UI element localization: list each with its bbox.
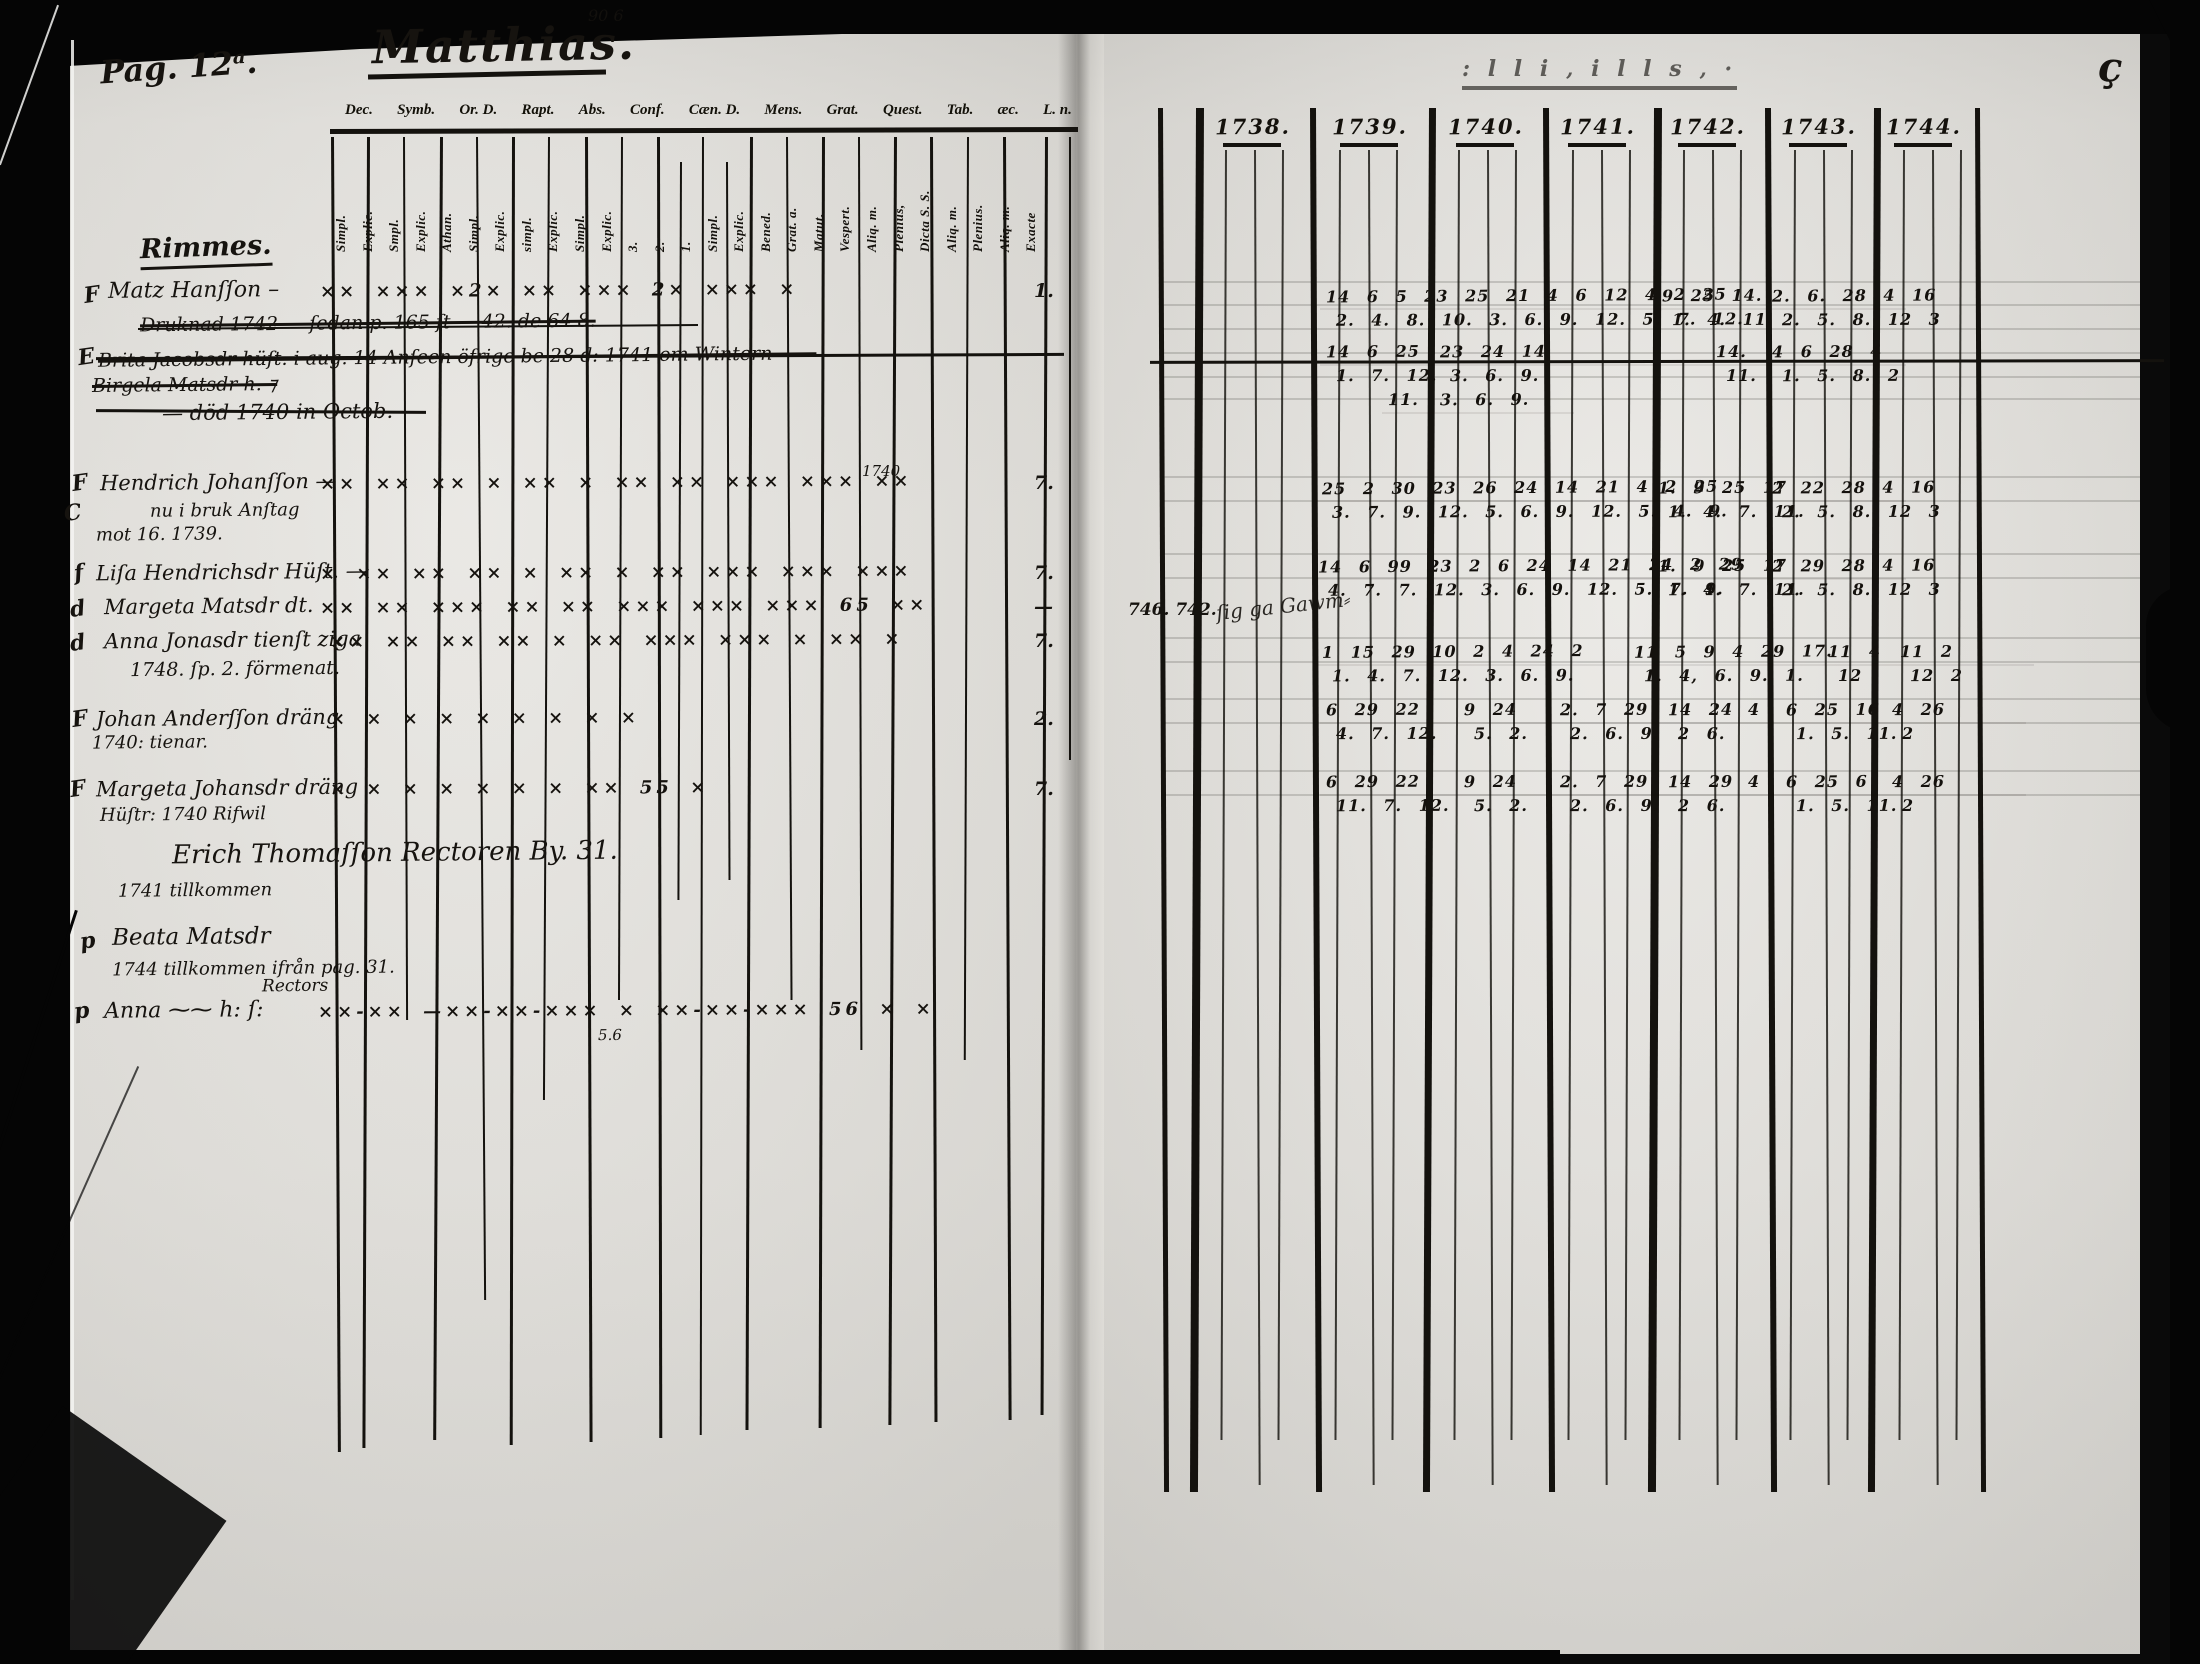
bleedthrough-note: : l l i ‚ i l l s ‚ · [1462, 56, 1737, 90]
grid-cell-bottom: 2. 6. 9. [1570, 796, 1659, 815]
header-abbrev: æc. [998, 102, 1019, 119]
grid-row-divider [1316, 500, 1906, 502]
grid-cell-top: 14 6 25 [1326, 342, 1420, 362]
entry-name: 1741 tillkommen [118, 879, 272, 902]
entry-grade: 7. [1034, 472, 1054, 494]
grid-cell-top: 1. 9 25 17 [1658, 478, 1787, 498]
header-abbrev: Dec. [345, 102, 373, 119]
grid-cell-bottom: 2. 5. 8. 12 3 [1782, 580, 1941, 600]
year-underline [1678, 143, 1736, 147]
entry-marks: × ×× ×× ×× × ×× × ×× ××× ××× ××× [320, 560, 913, 584]
header-abbrev: Abs. [579, 102, 606, 119]
grid-cell-top: 1. 9 25 17 [1658, 556, 1787, 576]
year-underline [1340, 143, 1398, 147]
margin-mark: F [70, 469, 89, 497]
grid-cell-bottom: 1. 4. 11. [1672, 310, 1773, 329]
grid-cell-bottom: 12 2 [1910, 666, 1963, 685]
entry-name: Hendrich Johanſſon — [100, 469, 337, 495]
column-label: Simpl. [706, 140, 719, 252]
entry-name: mot 16. 1739. [96, 523, 223, 545]
grid-cell-top: 14 24 [1668, 700, 1733, 719]
entry-grade: 7. [1034, 778, 1054, 800]
grid-row-divider [1312, 578, 1906, 580]
scan-border-bottom [0, 1650, 1560, 1664]
entry-name: 1740: tienar. [92, 731, 208, 753]
grid-cell-top: 9 24 [1464, 772, 1517, 791]
grid-cell-bottom: 2 6. [1678, 796, 1725, 815]
entry-grade: 7. [1034, 630, 1054, 652]
year-label: 1741. [1552, 114, 1644, 140]
grid-cell-bottom: 4. 7. 7. 12. 3. 6. 9. 12. 5. 7. 9. [1328, 579, 1724, 599]
column-rule [1069, 137, 1071, 760]
grid-cell-top: 4 [1748, 772, 1760, 791]
grid-cell-top: 11 2 [1900, 642, 1953, 661]
grid-cell-top: 9 24 [1464, 700, 1517, 719]
row-guide-line [1162, 352, 2140, 354]
margin-mark: F [70, 705, 89, 733]
grid-cell-top: 2. 7 29 [1560, 772, 1648, 792]
grid-cell-bottom: 2. 6. 9. [1570, 724, 1659, 743]
column-label: Explic. [732, 140, 745, 252]
margin-mark: C [62, 499, 83, 527]
header-abbrev: Tab. [947, 102, 974, 119]
margin-mark: F [82, 281, 101, 309]
entry-name: Birgela Matsdr h. ⁊ [92, 373, 277, 397]
entry-name: 1744 tillkommen ifrån pag. 31. [112, 957, 395, 981]
entry-marks: ×× ×× ××× ×× ×× ××× ××× ××× 65 ×× [320, 594, 928, 618]
grid-cell-top: 11 4 [1828, 642, 1881, 661]
year-underline [1789, 143, 1847, 147]
entry-name: Hüſtr: 1740 Rifwil [100, 803, 266, 826]
year-label: 1740. [1440, 114, 1532, 140]
row-guide-line [1162, 637, 2140, 639]
header-abbrev: Mens. [764, 102, 802, 119]
entry-name: Anna Jonasdr tienſt ziga [104, 627, 361, 654]
column-label: Aliq. m. [945, 140, 958, 252]
entry-note: 1740 [862, 462, 900, 480]
header-abbrev: L. n. [1043, 102, 1072, 119]
year-label: 1743. [1773, 114, 1865, 140]
header-abbrev: Cæn. D. [689, 102, 740, 119]
grid-cell-bottom: 2. 5. 8. 12 3 [1782, 502, 1941, 522]
row-guide-line [1162, 398, 2140, 400]
grid-cell-top: 11. [1388, 390, 1419, 409]
grid-row-divider [1316, 664, 2034, 666]
grid-cell-top: 2. 7 29 [1560, 700, 1648, 720]
book-scan: Pag. 12ᵃ. 90 6 Matthias. Dec.Symb.Or. D.… [0, 0, 2200, 1664]
grid-cell-top: 4 [1748, 700, 1760, 719]
year-underline [1456, 143, 1514, 147]
entry-grade: — [1034, 596, 1053, 618]
grid-cell-top: 6 29 22 [1326, 772, 1420, 792]
grid-cell-top: 4 26 [1892, 700, 1945, 719]
header-abbrev: Conf. [630, 102, 665, 119]
grid-cell-bottom: 3. 6. 9. [1450, 366, 1539, 385]
grid-cell-top: 11 5 9 4 29 17. [1634, 641, 1833, 661]
row-guide-line [1162, 698, 2140, 700]
grid-cell-bottom: 1. 5. 8. 2 [1782, 366, 1900, 385]
grid-cell-top: 9 25 14. [1662, 286, 1763, 306]
column-label: Explic. [414, 140, 427, 252]
entry-marks: × × × × × × × × × [330, 707, 640, 730]
grid-row-divider [1320, 364, 1906, 366]
entry-name: nu i bruk Anſtag [150, 499, 300, 522]
entry-marks: ×× ×× ×× ×× × ×× ××× ××× × ×× × [330, 628, 903, 652]
column-label: Aliq. m. [865, 140, 878, 252]
column-label: Simpl. [573, 140, 586, 252]
entry-name: 1748. ſp. 2. förmenat. [130, 657, 340, 681]
grid-cell-bottom: 11. [1726, 366, 1757, 385]
year-label: 1739. [1324, 114, 1416, 140]
section-heading: Rimmes. [139, 230, 272, 271]
column-label: Plenius. [971, 140, 984, 252]
column-label: Bened. [759, 140, 772, 252]
entry-name: Johan Anderſſon dräng [96, 705, 340, 732]
grid-cell-top: 6 25 6 [1786, 772, 1868, 792]
entry-marks: × × × × × × × ×× 55 × [330, 777, 709, 800]
grid-cell-top: 4 26 [1892, 772, 1945, 791]
corner-mark: ç [2098, 44, 2122, 91]
page-title: Matthias. [372, 16, 637, 75]
entry-marks: ××-×× —××-××-××× × ××-××-××× 56 × × [318, 998, 935, 1022]
row-guide-line [1162, 770, 2140, 772]
entry-name: — död 1740 in Octob. [162, 399, 393, 425]
header-abbrev: Grat. [827, 102, 859, 119]
grid-cell-top: 14. [1716, 342, 1747, 361]
grid-cell-bottom: 1. 5. 11. [1796, 724, 1897, 743]
year-label: 1744. [1878, 114, 1970, 140]
grid-cell-bottom: 2 6. [1678, 724, 1725, 743]
grid-cell-top: 6 25 16 [1786, 700, 1880, 720]
grid-row-divider [1320, 794, 2026, 796]
column-label: 3. [626, 140, 639, 252]
entry-name: Margeta Matsdr dt. [104, 593, 314, 619]
entry-name: Anna ⁓⁓ h: ſ: [104, 997, 264, 1024]
grid-cell-bottom: 1. 4. 7. 12. 3. 6. 9. [1332, 666, 1575, 686]
column-label: Explic. [493, 140, 506, 252]
row-guide-line [1162, 281, 2140, 283]
scan-border-right [2170, 0, 2200, 1664]
row-guide-line [1162, 304, 2140, 306]
year-underline [1894, 143, 1952, 147]
grid-cell-bottom: 1. 4, 6. 9. 1. [1644, 666, 1804, 686]
year-label: 1742. [1662, 114, 1754, 140]
grid-cell-bottom: 5. 2. [1474, 724, 1528, 743]
column-label: simpl. [520, 140, 533, 252]
entry-name: 5.6 [598, 1026, 622, 1044]
grid-cell-bottom: 1. 7. 12. [1336, 366, 1437, 385]
grid-row-divider [1320, 308, 1906, 310]
grid-cell-bottom: 11. 7. 12. [1336, 796, 1450, 815]
entry-name: Beata Matsdr [112, 923, 271, 951]
grid-cell-top: 2. 6. 28 4 16 [1772, 285, 1936, 305]
column-label: Exacte [1024, 140, 1037, 252]
entry-grade: 1. [1034, 280, 1054, 302]
header-abbrev: Rapt. [522, 102, 555, 119]
grid-cell-top: 6 29 22 [1326, 700, 1420, 720]
grid-cell-top: 14 29 [1668, 772, 1733, 791]
page-gutter-shadow [1058, 26, 1104, 1654]
column-header-row: Dec.Symb.Or. D.Rapt.Abs.Conf.Cæn. D.Mens… [345, 102, 1072, 119]
grid-row-divider [1382, 412, 1574, 414]
column-label: Vespert. [838, 140, 851, 252]
grid-cell-bottom: 4. 7. 12. [1336, 724, 1437, 743]
header-abbrev: Quest. [883, 102, 923, 119]
grid-cell-bottom: 5. 2. [1474, 796, 1528, 815]
column-label: Simpl. [334, 140, 347, 252]
entry-name: Margeta Johansdr dräng [96, 775, 358, 802]
grid-cell-top: 23 24 14 [1440, 342, 1546, 362]
column-label: Explic. [600, 140, 613, 252]
entry-name: Matz Hanſſon – [108, 277, 279, 304]
grid-cell-top: 4 6 28 4 [1772, 342, 1883, 362]
entry-marks: ×× ××× ×2× ×× ××× 2× ××× × [320, 279, 798, 303]
margin-mark: E [76, 343, 96, 371]
grid-cell-top: 2 29 28 4 16 [1772, 555, 1935, 575]
grid-cell-bottom: 1. 5. 11. [1796, 796, 1897, 815]
header-abbrev: Or. D. [459, 102, 497, 119]
entry-grade: 7. [1034, 562, 1054, 584]
grid-cell-bottom: 2 [1902, 796, 1914, 815]
grid-cell-top: 1 15 29 10 2 4 24 2 [1322, 641, 1584, 662]
column-label: Smpl. [387, 140, 400, 252]
grid-row-divider [1320, 722, 2026, 724]
grid-cell-bottom: 2. 5. 8. 12 3 [1782, 310, 1941, 330]
header-abbrev: Symb. [397, 102, 435, 119]
entry-name: Erich Thomaſſon Rectoren By. 31. [172, 836, 618, 871]
grid-cell-bottom: 12 [1838, 666, 1862, 685]
year-underline [1223, 143, 1281, 147]
entry-name: Rectors [262, 976, 329, 997]
year-underline [1568, 143, 1626, 147]
grid-cell-top: 2 22 28 4 16 [1772, 477, 1935, 497]
entry-marks: ×× ×× ×× × ×× × ×× ×× ××× ××× ×× [320, 470, 913, 494]
grid-cell-bottom: 2 [1902, 724, 1914, 743]
grid-cell-top: 3. 6. 9. [1440, 390, 1529, 410]
side-annotation: 746. 742. [1128, 600, 1217, 620]
year-label: 1738. [1207, 114, 1299, 140]
book-edge-highlight [71, 40, 74, 1600]
row-guide-line [1162, 376, 2140, 378]
entry-grade: 2. [1034, 708, 1054, 730]
margin-mark: F [68, 775, 87, 803]
